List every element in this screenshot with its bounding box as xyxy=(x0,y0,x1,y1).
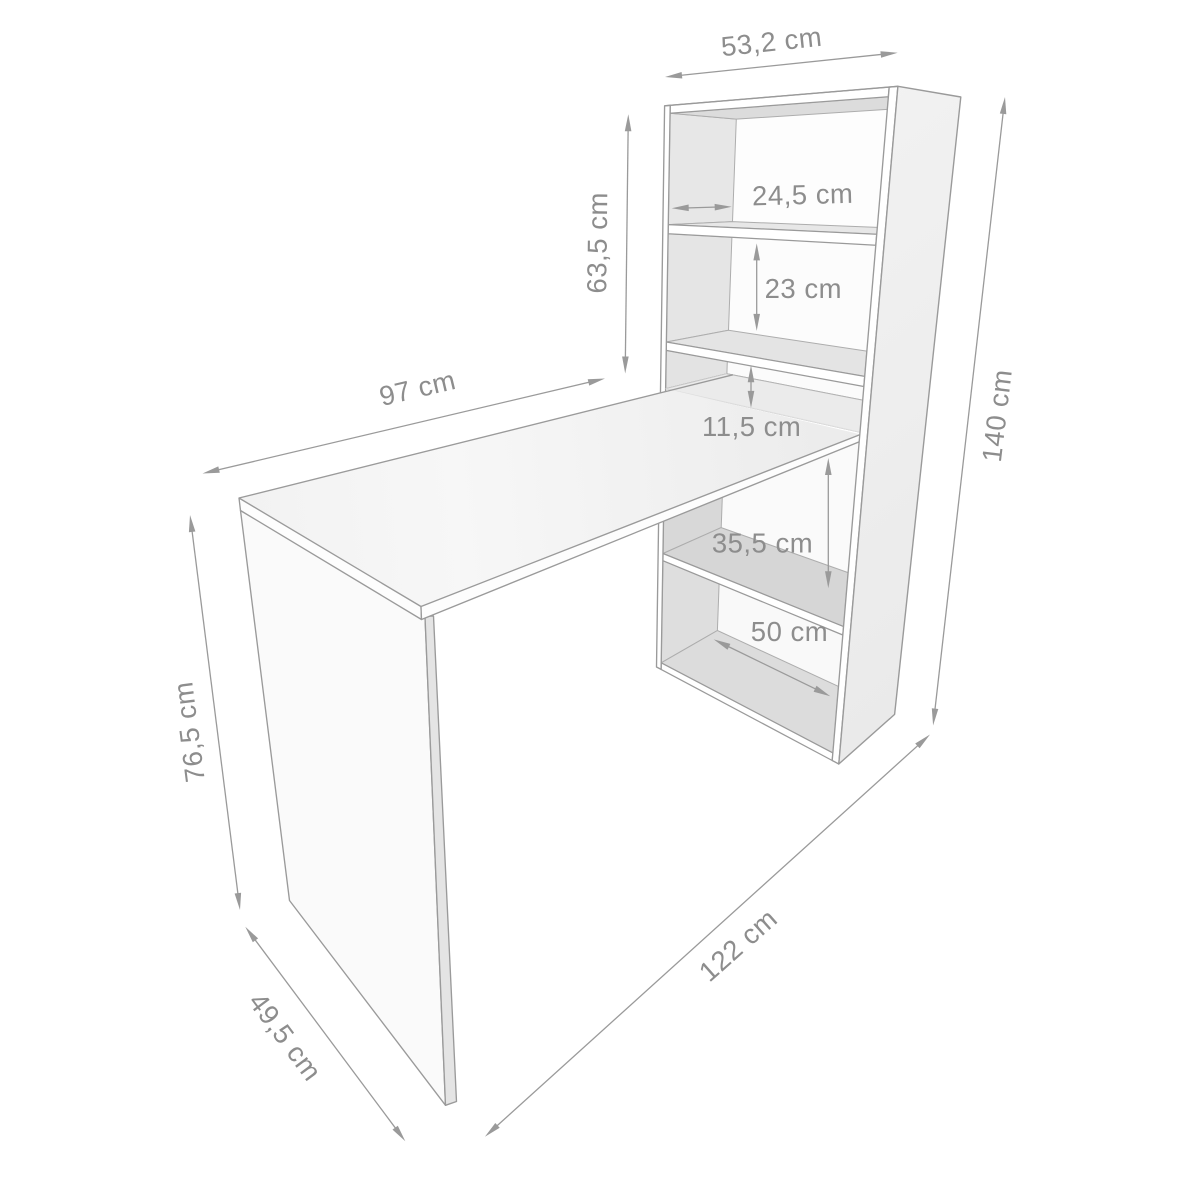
svg-text:35,5 cm: 35,5 cm xyxy=(712,527,813,558)
svg-text:24,5 cm: 24,5 cm xyxy=(752,178,854,212)
svg-text:50 cm: 50 cm xyxy=(751,616,828,647)
svg-text:23 cm: 23 cm xyxy=(765,273,842,304)
svg-text:11,5 cm: 11,5 cm xyxy=(702,411,801,442)
svg-text:63,5 cm: 63,5 cm xyxy=(581,192,613,294)
